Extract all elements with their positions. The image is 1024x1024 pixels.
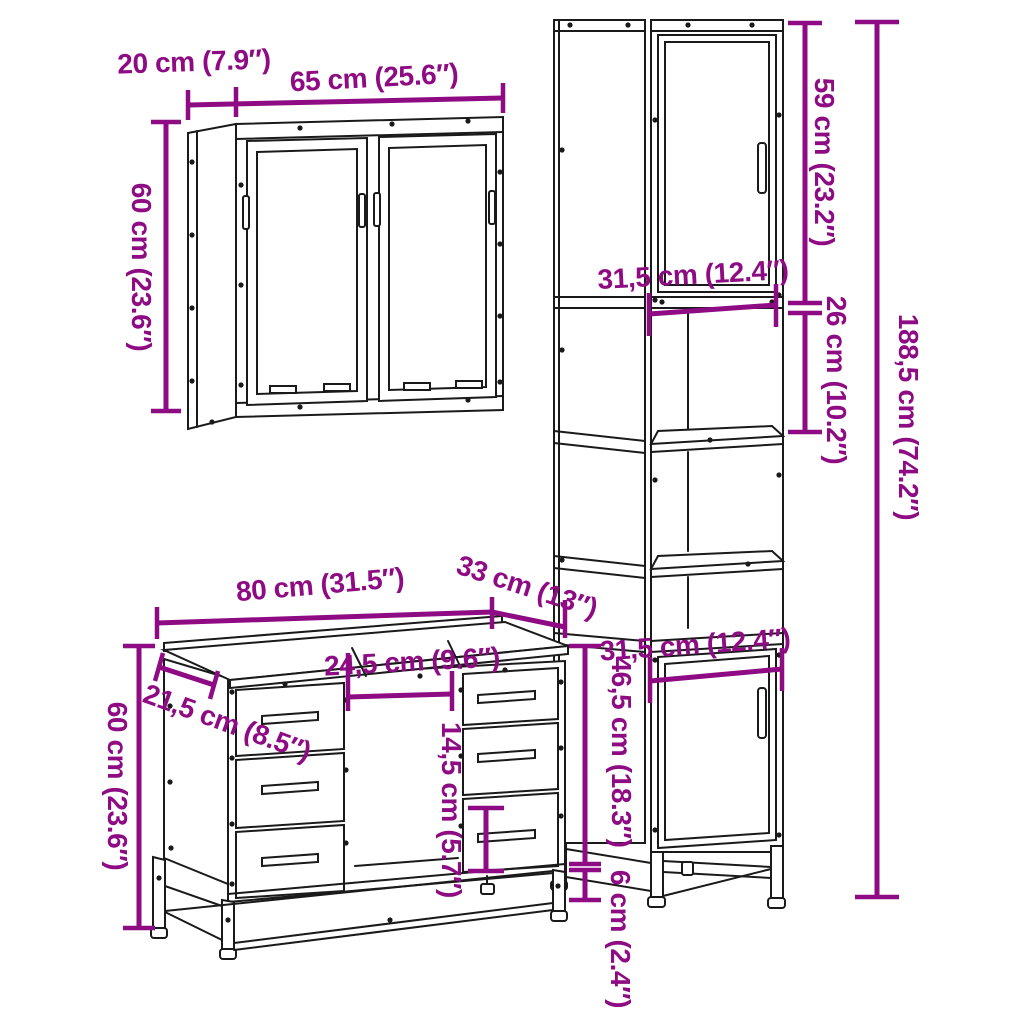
label-tall-leg-height: 6 cm (2.4″) [604,870,636,1008]
door-handle [489,191,495,224]
door-handle [243,196,249,229]
foot [682,862,693,875]
label-tall-total-height: 188,5 cm (74.2″) [892,314,924,520]
label-vanity-height: 60 cm (23.6″) [101,702,133,871]
label-tall-shelf-gap: 26 cm (10.2″) [820,296,852,465]
foot [551,911,567,921]
foot [648,897,665,907]
door-handle [359,194,365,227]
label-vanity-drawer-height: 14,5 cm (5.7″) [435,722,467,898]
foot [768,898,785,908]
wall-cabinet-side-panel [188,124,236,429]
leg [153,857,165,934]
door-handle [758,688,766,738]
label-wall-cabinet-depth: 20 cm (7.9″) [117,43,271,80]
foot [481,884,494,894]
door-handle [374,193,380,226]
leg [651,852,663,900]
furniture-line-art [0,0,1024,1024]
leg [771,846,783,901]
leg [222,900,234,955]
door-handle [758,143,766,193]
label-wall-cabinet-height: 60 cm (23.6″) [125,183,157,352]
dim-tall-leg-height-line [569,870,601,900]
label-tall-bottom-height: 46,5 cm (18.3″) [605,656,637,847]
label-tall-top-height: 59 cm (23.2″) [808,78,840,247]
dim-tall-shelf-gap-line [788,313,822,432]
diagram-canvas: 20 cm (7.9″) 65 cm (25.6″) 60 cm (23.6″)… [0,0,1024,1024]
wall-cabinet-drawing [188,117,503,429]
leg [553,870,565,917]
